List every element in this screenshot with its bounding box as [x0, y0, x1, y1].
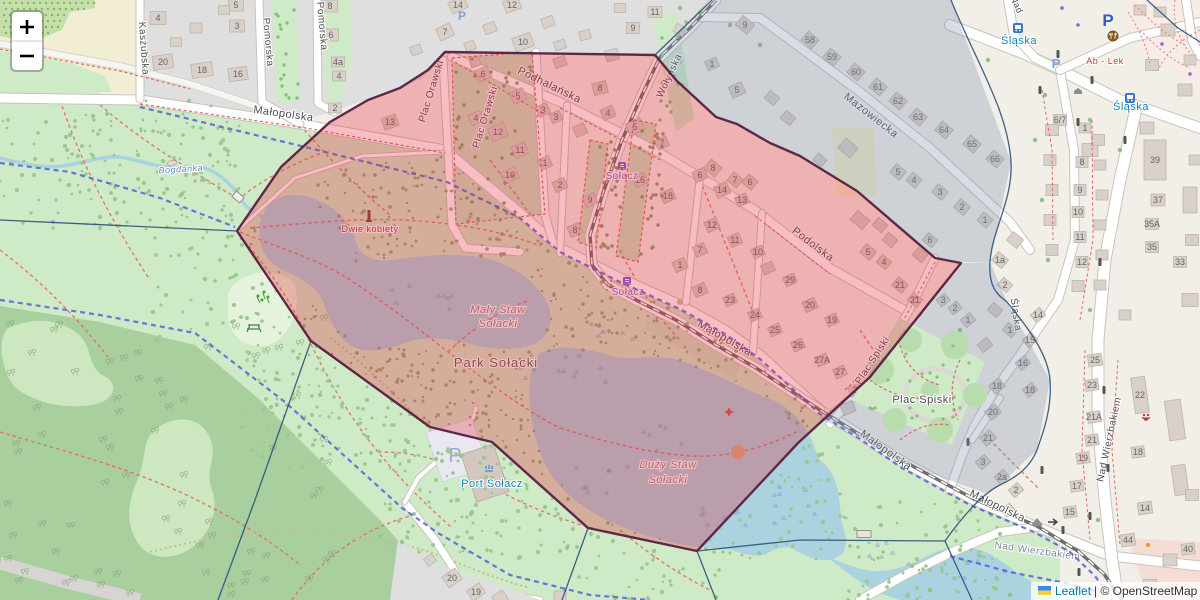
svg-text:Port Sołacz: Port Sołacz	[461, 478, 523, 490]
svg-text:2: 2	[1002, 280, 1007, 290]
svg-text:4a: 4a	[333, 57, 343, 67]
svg-text:10: 10	[518, 37, 528, 47]
svg-text:6/7: 6/7	[1054, 115, 1067, 125]
svg-text:8: 8	[1079, 157, 1084, 167]
svg-text:4: 4	[155, 13, 160, 23]
svg-text:19: 19	[471, 587, 481, 597]
svg-text:Śląska: Śląska	[1001, 34, 1037, 47]
svg-text:Ab - Lek: Ab - Lek	[1086, 56, 1124, 66]
svg-text:5: 5	[233, 0, 238, 10]
svg-text:P: P	[1052, 56, 1061, 71]
svg-text:44: 44	[1123, 535, 1133, 545]
svg-text:3: 3	[234, 21, 239, 31]
svg-text:11: 11	[1075, 232, 1084, 242]
svg-text:4: 4	[336, 71, 341, 81]
svg-text:20: 20	[447, 573, 457, 583]
svg-text:Leaflet: Leaflet	[1055, 584, 1092, 598]
svg-text:10: 10	[1073, 207, 1083, 217]
svg-text:33: 33	[1175, 257, 1185, 267]
svg-text:Plac Spiski: Plac Spiski	[892, 394, 951, 406]
svg-text:14: 14	[1140, 503, 1150, 513]
svg-text:7: 7	[442, 27, 447, 37]
svg-text:40: 40	[1183, 544, 1193, 554]
svg-text:P: P	[458, 9, 466, 23]
svg-text:14: 14	[1033, 310, 1043, 320]
svg-text:17: 17	[1072, 481, 1082, 491]
svg-text:1: 1	[1082, 123, 1087, 133]
svg-text:2: 2	[332, 103, 337, 113]
svg-text:12: 12	[1077, 257, 1087, 267]
svg-text:21A: 21A	[1086, 412, 1102, 422]
svg-text:21: 21	[1087, 435, 1097, 445]
svg-text:9: 9	[1077, 185, 1082, 195]
svg-text:8: 8	[327, 1, 332, 11]
svg-text:6: 6	[328, 30, 333, 40]
svg-text:18: 18	[197, 65, 207, 75]
svg-text:39: 39	[1150, 155, 1160, 165]
svg-text:25: 25	[1090, 355, 1100, 365]
svg-text:2: 2	[1013, 485, 1018, 495]
svg-text:15: 15	[1065, 507, 1075, 517]
svg-text:11: 11	[650, 7, 659, 17]
svg-text:1a: 1a	[995, 255, 1005, 265]
svg-text:23: 23	[1087, 380, 1097, 390]
svg-text:12: 12	[507, 0, 517, 10]
svg-text:37: 37	[1153, 195, 1163, 205]
svg-text:P: P	[1102, 11, 1113, 30]
svg-text:35A: 35A	[1144, 219, 1160, 229]
svg-text:18: 18	[1133, 447, 1143, 457]
svg-text:9: 9	[630, 23, 635, 33]
svg-text:16: 16	[233, 69, 243, 79]
svg-text:20: 20	[158, 57, 168, 67]
svg-text:35: 35	[1147, 242, 1157, 252]
svg-text:| © OpenStreetMap: | © OpenStreetMap	[1094, 584, 1198, 598]
svg-text:22: 22	[1135, 390, 1145, 400]
